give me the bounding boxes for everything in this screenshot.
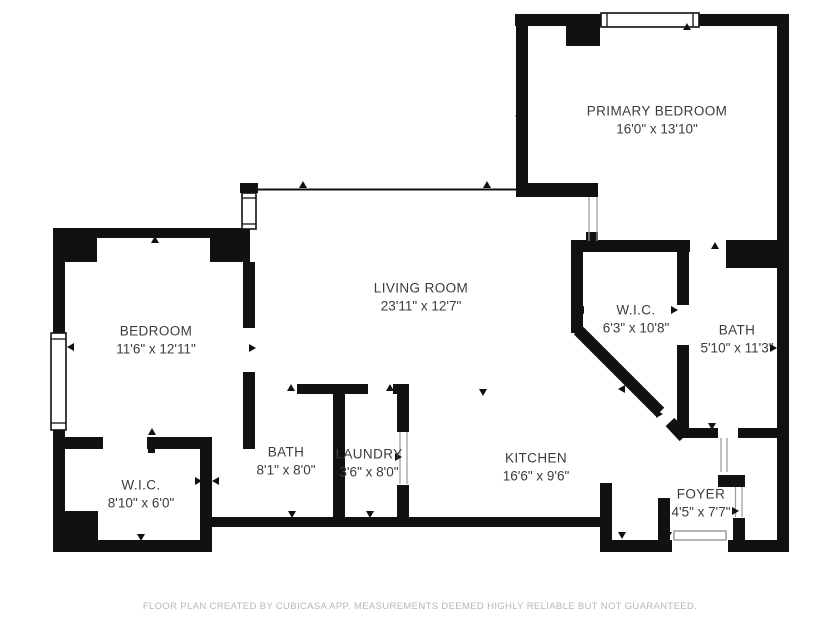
- floorplan-page: PRIMARY BEDROOM 16'0" x 13'10" LIVING RO…: [0, 0, 840, 630]
- room-dimensions: 6'3" x 10'8": [603, 321, 670, 338]
- room-dimensions: 3'6" x 8'0": [335, 465, 402, 482]
- room-name: KITCHEN: [503, 451, 570, 468]
- room-name: BATH: [700, 323, 773, 340]
- room-name: BATH: [256, 445, 315, 462]
- room-name: LAUNDRY: [335, 447, 402, 464]
- room-dimensions: 5'10" x 11'3": [700, 341, 773, 358]
- room-dimensions: 11'6" x 12'11": [116, 342, 196, 359]
- room-name: PRIMARY BEDROOM: [587, 104, 728, 121]
- room-dimensions: 16'0" x 13'10": [587, 122, 728, 139]
- diagonal-walls-group: [578, 330, 684, 437]
- room-label-bath-primary: BATH 5'10" x 11'3": [700, 323, 773, 358]
- room-dimensions: 4'5" x 7'7": [671, 505, 730, 522]
- room-name: W.I.C.: [108, 478, 175, 495]
- entry-door: [674, 531, 726, 540]
- room-label-wic: W.I.C. 8'10" x 6'0": [108, 478, 175, 513]
- room-dimensions: 8'10" x 6'0": [108, 496, 175, 513]
- room-label-bedroom: BEDROOM 11'6" x 12'11": [116, 324, 196, 359]
- room-label-wic-primary: W.I.C. 6'3" x 10'8": [603, 303, 670, 338]
- windows-group: [51, 13, 699, 430]
- room-dimensions: 8'1" x 8'0": [256, 463, 315, 480]
- room-label-foyer: FOYER 4'5" x 7'7": [671, 487, 730, 522]
- window: [601, 13, 699, 27]
- window: [51, 333, 66, 430]
- room-label-living-room: LIVING ROOM 23'11" x 12'7": [374, 281, 468, 316]
- room-name: FOYER: [671, 487, 730, 504]
- room-dimensions: 16'6" x 9'6": [503, 469, 570, 486]
- room-label-bath: BATH 8'1" x 8'0": [256, 445, 315, 480]
- room-name: W.I.C.: [603, 303, 670, 320]
- room-name: LIVING ROOM: [374, 281, 468, 298]
- room-name: BEDROOM: [116, 324, 196, 341]
- room-label-primary-bedroom: PRIMARY BEDROOM 16'0" x 13'10": [587, 104, 728, 139]
- room-label-laundry: LAUNDRY 3'6" x 8'0": [335, 447, 402, 482]
- room-label-kitchen: KITCHEN 16'6" x 9'6": [503, 451, 570, 486]
- footer-disclaimer: FLOOR PLAN CREATED BY CUBICASA APP. MEAS…: [0, 601, 840, 612]
- room-dimensions: 23'11" x 12'7": [374, 299, 468, 316]
